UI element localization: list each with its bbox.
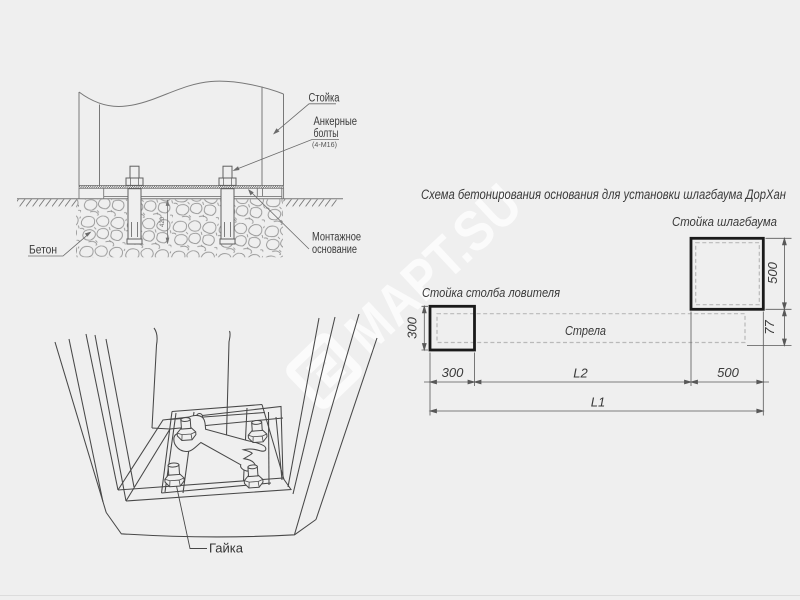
svg-text:L2: L2 xyxy=(573,366,588,381)
svg-text:Стойка столба ловителя: Стойка столба ловителя xyxy=(422,286,560,300)
svg-text:Стрела: Стрела xyxy=(565,324,606,338)
svg-text:500: 500 xyxy=(717,365,739,380)
svg-text:Схема бетонирования основания: Схема бетонирования основания для устано… xyxy=(421,187,786,202)
svg-text:L1: L1 xyxy=(591,395,605,410)
svg-text:300: 300 xyxy=(442,365,464,380)
svg-text:Бетон: Бетон xyxy=(29,245,57,257)
svg-text:77: 77 xyxy=(762,320,777,335)
svg-text:Гайка: Гайка xyxy=(209,541,244,556)
svg-text:500: 500 xyxy=(765,261,780,283)
svg-text:основание: основание xyxy=(312,244,357,256)
svg-text:болты: болты xyxy=(314,128,339,140)
svg-text:Анкерные: Анкерные xyxy=(314,116,358,128)
svg-text:(4-М16): (4-М16) xyxy=(312,140,337,149)
svg-text:300: 300 xyxy=(405,316,420,338)
svg-text:Монтажное: Монтажное xyxy=(312,232,361,244)
svg-text:Стойка шлагбаума: Стойка шлагбаума xyxy=(672,215,777,229)
svg-text:Стойка: Стойка xyxy=(309,93,340,105)
svg-text:420: 420 xyxy=(160,216,166,227)
